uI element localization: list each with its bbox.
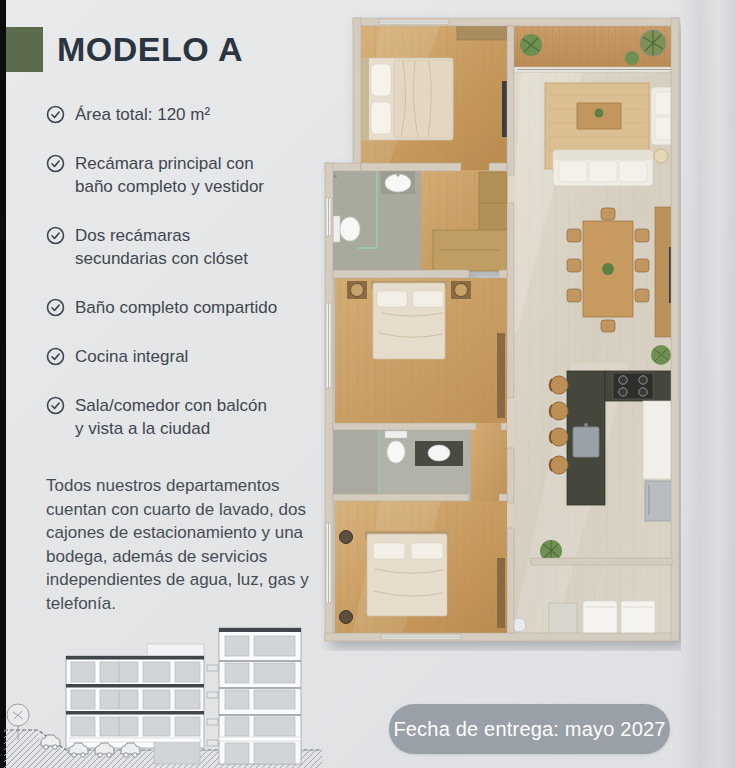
accent-square [6,27,43,72]
feature-label: Baño completo compartido [75,296,278,319]
background-fold-shade [677,0,735,768]
header: MODELO A [6,27,243,72]
sink [428,445,450,461]
plant [595,109,604,118]
brochure-page: { "colors": { "background": "#e4e5e7", "… [0,0,735,768]
delivery-badge-label: Fecha de entrega: mayo 2027 [393,718,665,741]
check-circle-icon [46,347,65,366]
building-elevation-drawing [4,618,322,768]
sink [385,174,411,192]
delivery-badge: Fecha de entrega: mayo 2027 [389,704,670,754]
check-circle-icon [46,298,65,317]
feature-item: Baño completo compartido [46,296,278,319]
closet [497,558,505,628]
toilet [340,217,360,241]
floor-lamp [654,149,668,163]
feature-item: Recámara principal con baño completo y v… [46,152,278,198]
cooktop [613,373,653,399]
feature-label: Dos recámaras secundarias con clóset [75,224,278,270]
tv [502,81,507,137]
cabinets [643,401,672,479]
feature-label: Área total: 120 m² [75,103,278,126]
kitchen-sink [573,427,599,457]
connector-balconies [207,665,218,746]
page-title: MODELO A [57,30,243,69]
wardrobe [457,24,507,40]
feature-label: Recámara principal con baño completo y v… [75,152,278,198]
feature-item: Dos recámaras secundarias con clóset [46,224,278,270]
check-circle-icon [46,226,65,245]
table [549,603,577,637]
check-circle-icon [46,396,65,415]
feature-list: Área total: 120 m² Recámara principal co… [46,103,278,466]
check-circle-icon [46,154,65,173]
feature-item: Área total: 120 m² [46,103,278,126]
feature-label: Cocina integral [75,345,278,368]
feature-label: Sala/comedor con balcón y vista a la ciu… [75,394,278,440]
feature-item: Cocina integral [46,345,278,368]
feature-item: Sala/comedor con balcón y vista a la ciu… [46,394,278,440]
toilet [387,441,405,463]
description-paragraph: Todos nuestros departamentos cuentan con… [46,474,320,615]
sofa [553,150,653,186]
closet [497,333,505,418]
plant [625,51,639,65]
check-circle-icon [46,105,65,124]
floor-plan [321,3,681,651]
plant [602,263,614,275]
right-building [219,628,301,764]
